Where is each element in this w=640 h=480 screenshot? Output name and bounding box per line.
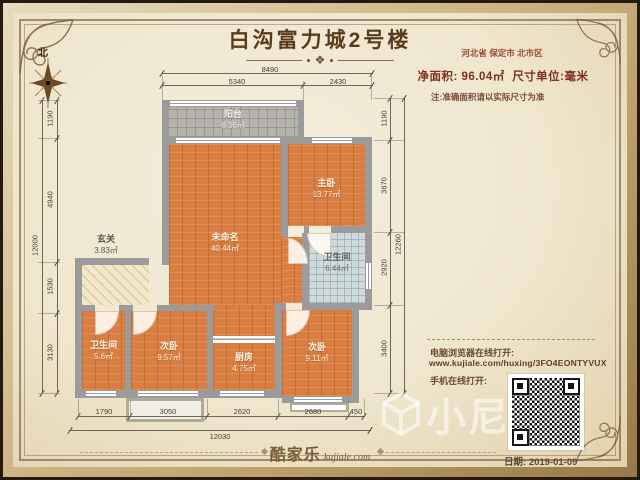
watermark-text: 小尼	[426, 385, 510, 443]
room-label-master: 主卧13.77㎡	[288, 178, 365, 200]
room-label-bedroom2: 次卧9.57㎡	[131, 341, 207, 363]
witness-line	[38, 100, 60, 101]
witness-line	[371, 76, 372, 100]
dim-label: 8490	[250, 65, 290, 74]
witness-line	[348, 399, 349, 414]
dimension-line	[42, 100, 43, 393]
footer-dashed-line	[386, 452, 496, 453]
window	[312, 138, 352, 143]
qr-finder	[563, 378, 580, 395]
cube-icon	[380, 391, 422, 437]
divider-dot	[307, 59, 310, 62]
net-area-value: 96.04㎡	[462, 71, 505, 83]
window	[138, 391, 198, 396]
wall	[331, 226, 365, 233]
dim-label: 12030	[200, 432, 240, 441]
dim-label: 4940	[46, 180, 55, 220]
floorplan-poster: 白沟富力城2号楼 北 河北省 保定市 北市区 净面积: 96.04㎡ 尺寸单位:…	[0, 0, 640, 480]
date-value: 2019-01-09	[529, 457, 578, 468]
window	[86, 391, 116, 396]
witness-line	[303, 81, 304, 100]
room-label-bedroom3: 次卧9.11㎡	[282, 342, 352, 364]
dimension-line	[404, 98, 405, 393]
witness-line	[374, 232, 404, 233]
brand-logo: 酷家乐 kujiale.com	[264, 441, 376, 465]
share-url: www.kujiale.com/huxing/3FO4EONTYVUX	[429, 358, 607, 368]
diamond-ornament-icon	[315, 54, 326, 66]
witness-line	[374, 305, 404, 306]
wall	[75, 265, 82, 398]
dim-label: 2620	[222, 407, 262, 416]
witness-line	[374, 140, 404, 141]
qr-finder	[512, 429, 529, 446]
wall	[162, 144, 169, 265]
witness-line	[207, 399, 208, 414]
dim-label: 450	[341, 407, 371, 416]
wall	[75, 258, 149, 265]
witness-line	[78, 399, 79, 414]
wall	[365, 137, 372, 233]
wall	[282, 303, 286, 310]
wall	[281, 144, 288, 237]
room-label-balcony: 阳台6.36㎡	[168, 109, 298, 131]
net-area-label: 净面积:	[417, 71, 457, 83]
dim-label: 3130	[46, 333, 55, 373]
window	[294, 397, 342, 402]
room-label-entry: 玄关3.83㎡	[77, 234, 135, 256]
qr-finder	[512, 378, 529, 395]
dim-label: 3050	[148, 407, 188, 416]
wall	[275, 303, 282, 390]
dim-label: 5340	[217, 77, 257, 86]
watermark: 小尼	[380, 385, 510, 443]
wall	[298, 107, 304, 137]
witness-line	[38, 138, 60, 139]
divider-line	[338, 60, 394, 61]
window	[170, 101, 296, 106]
dim-label: 3400	[380, 329, 389, 369]
dim-label: 1190	[380, 99, 389, 139]
room-label-kitchen: 厨房4.75㎡	[213, 352, 275, 374]
date-label: 日期:	[504, 457, 526, 468]
dim-label: 12260	[394, 225, 403, 265]
brand-name: 酷家乐	[270, 441, 321, 465]
date-text: 日期: 2019-01-09	[504, 454, 577, 468]
witness-line	[130, 399, 131, 414]
dim-label: 1790	[84, 407, 124, 416]
window	[220, 391, 264, 396]
dim-label: 2680	[293, 407, 333, 416]
witness-line	[162, 76, 163, 100]
room-label-living: 未命名40.44㎡	[169, 232, 281, 254]
qr-code	[508, 374, 584, 450]
net-area-row: 净面积: 96.04㎡ 尺寸单位:毫米	[408, 68, 598, 84]
dimension-line	[70, 430, 371, 431]
witness-line	[38, 393, 60, 394]
divider-line	[246, 60, 302, 61]
dim-label: 12000	[31, 226, 40, 266]
divider-dot	[330, 59, 333, 62]
living-floor	[169, 144, 281, 305]
unit-label: 尺寸单位:毫米	[512, 71, 588, 83]
kitchen-sliding-door	[213, 336, 275, 343]
window	[366, 263, 371, 289]
area-note: 注:准确面积请以实际尺寸为准	[431, 91, 544, 103]
witness-line	[364, 399, 365, 414]
dim-label: 1190	[46, 99, 55, 139]
witness-line	[38, 262, 60, 263]
dashed-separator	[427, 339, 595, 340]
room-label-main-bathroom: 卫生间6.44㎡	[309, 252, 365, 274]
dim-label: 2920	[380, 248, 389, 288]
footer-dashed-line	[80, 452, 258, 453]
witness-line	[374, 98, 404, 99]
window	[176, 138, 280, 143]
dim-label: 3670	[380, 166, 389, 206]
witness-line	[278, 399, 279, 414]
witness-line	[38, 313, 60, 314]
wall	[352, 310, 359, 396]
wall	[82, 305, 95, 311]
wall	[304, 226, 309, 233]
brand-site: kujiale.com	[324, 452, 370, 463]
dimension-line	[390, 98, 391, 393]
dimension-line	[57, 100, 58, 393]
wall	[302, 233, 309, 303]
dimension-line	[78, 416, 365, 417]
room-label-small-bathroom: 卫生间5.6㎡	[82, 340, 125, 362]
wall	[207, 305, 213, 390]
dim-label: 1530	[46, 267, 55, 307]
location-text: 河北省 保定市 北市区	[412, 47, 592, 59]
dim-label: 2430	[318, 77, 358, 86]
entry-floor	[82, 265, 149, 305]
wall	[310, 303, 359, 310]
